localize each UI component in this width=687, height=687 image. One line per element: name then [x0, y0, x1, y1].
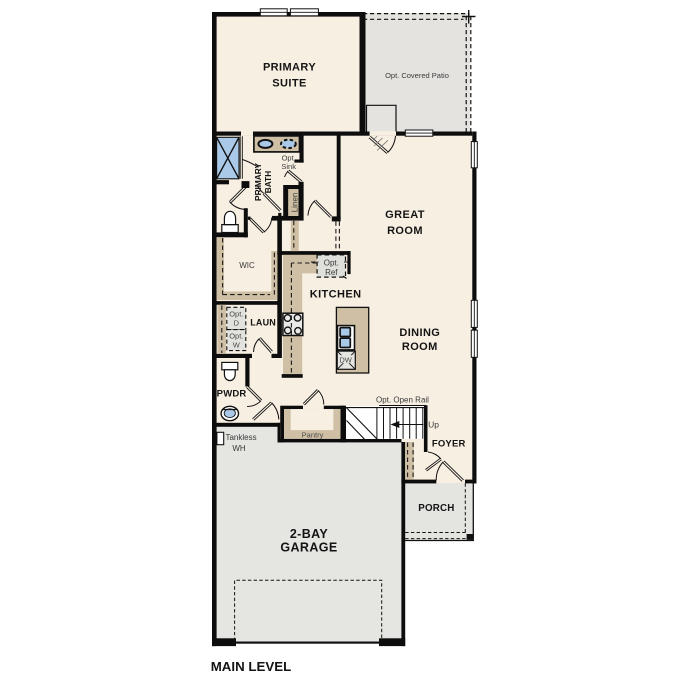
- svg-text:Up: Up: [428, 420, 439, 430]
- svg-text:Pantry: Pantry: [302, 431, 324, 440]
- svg-text:PRIMARY: PRIMARY: [253, 163, 263, 201]
- svg-text:Opt. Covered Patio: Opt. Covered Patio: [385, 71, 449, 80]
- svg-text:D: D: [234, 319, 240, 328]
- svg-text:Linen: Linen: [291, 193, 300, 213]
- svg-text:PORCH: PORCH: [418, 503, 454, 514]
- svg-text:ROOM: ROOM: [387, 225, 423, 237]
- svg-text:PRIMARY: PRIMARY: [263, 62, 316, 74]
- svg-text:Ref: Ref: [325, 268, 338, 277]
- svg-text:DINING: DINING: [399, 327, 440, 339]
- svg-text:GARAGE: GARAGE: [280, 541, 337, 555]
- svg-text:2-BAY: 2-BAY: [290, 527, 329, 541]
- svg-text:W: W: [233, 341, 241, 350]
- svg-text:Opt.: Opt.: [324, 259, 339, 268]
- svg-text:PWDR: PWDR: [217, 389, 247, 400]
- svg-text:Opt.: Opt.: [229, 310, 243, 319]
- svg-text:BATH: BATH: [263, 171, 273, 193]
- svg-text:MAIN LEVEL: MAIN LEVEL: [211, 659, 292, 674]
- svg-text:WH: WH: [232, 444, 246, 453]
- svg-text:FOYER: FOYER: [432, 439, 466, 450]
- svg-text:GREAT: GREAT: [385, 209, 425, 221]
- svg-text:LAUN: LAUN: [250, 318, 276, 328]
- svg-text:SUITE: SUITE: [272, 78, 306, 90]
- svg-text:DW: DW: [339, 355, 352, 364]
- svg-text:WIC: WIC: [239, 261, 255, 270]
- svg-text:KITCHEN: KITCHEN: [310, 289, 362, 301]
- svg-text:Tankless: Tankless: [225, 433, 256, 442]
- svg-text:ROOM: ROOM: [402, 341, 438, 353]
- svg-text:Sink: Sink: [281, 162, 296, 171]
- svg-text:Opt. Open Rail: Opt. Open Rail: [376, 396, 429, 405]
- svg-text:Opt.: Opt.: [229, 332, 243, 341]
